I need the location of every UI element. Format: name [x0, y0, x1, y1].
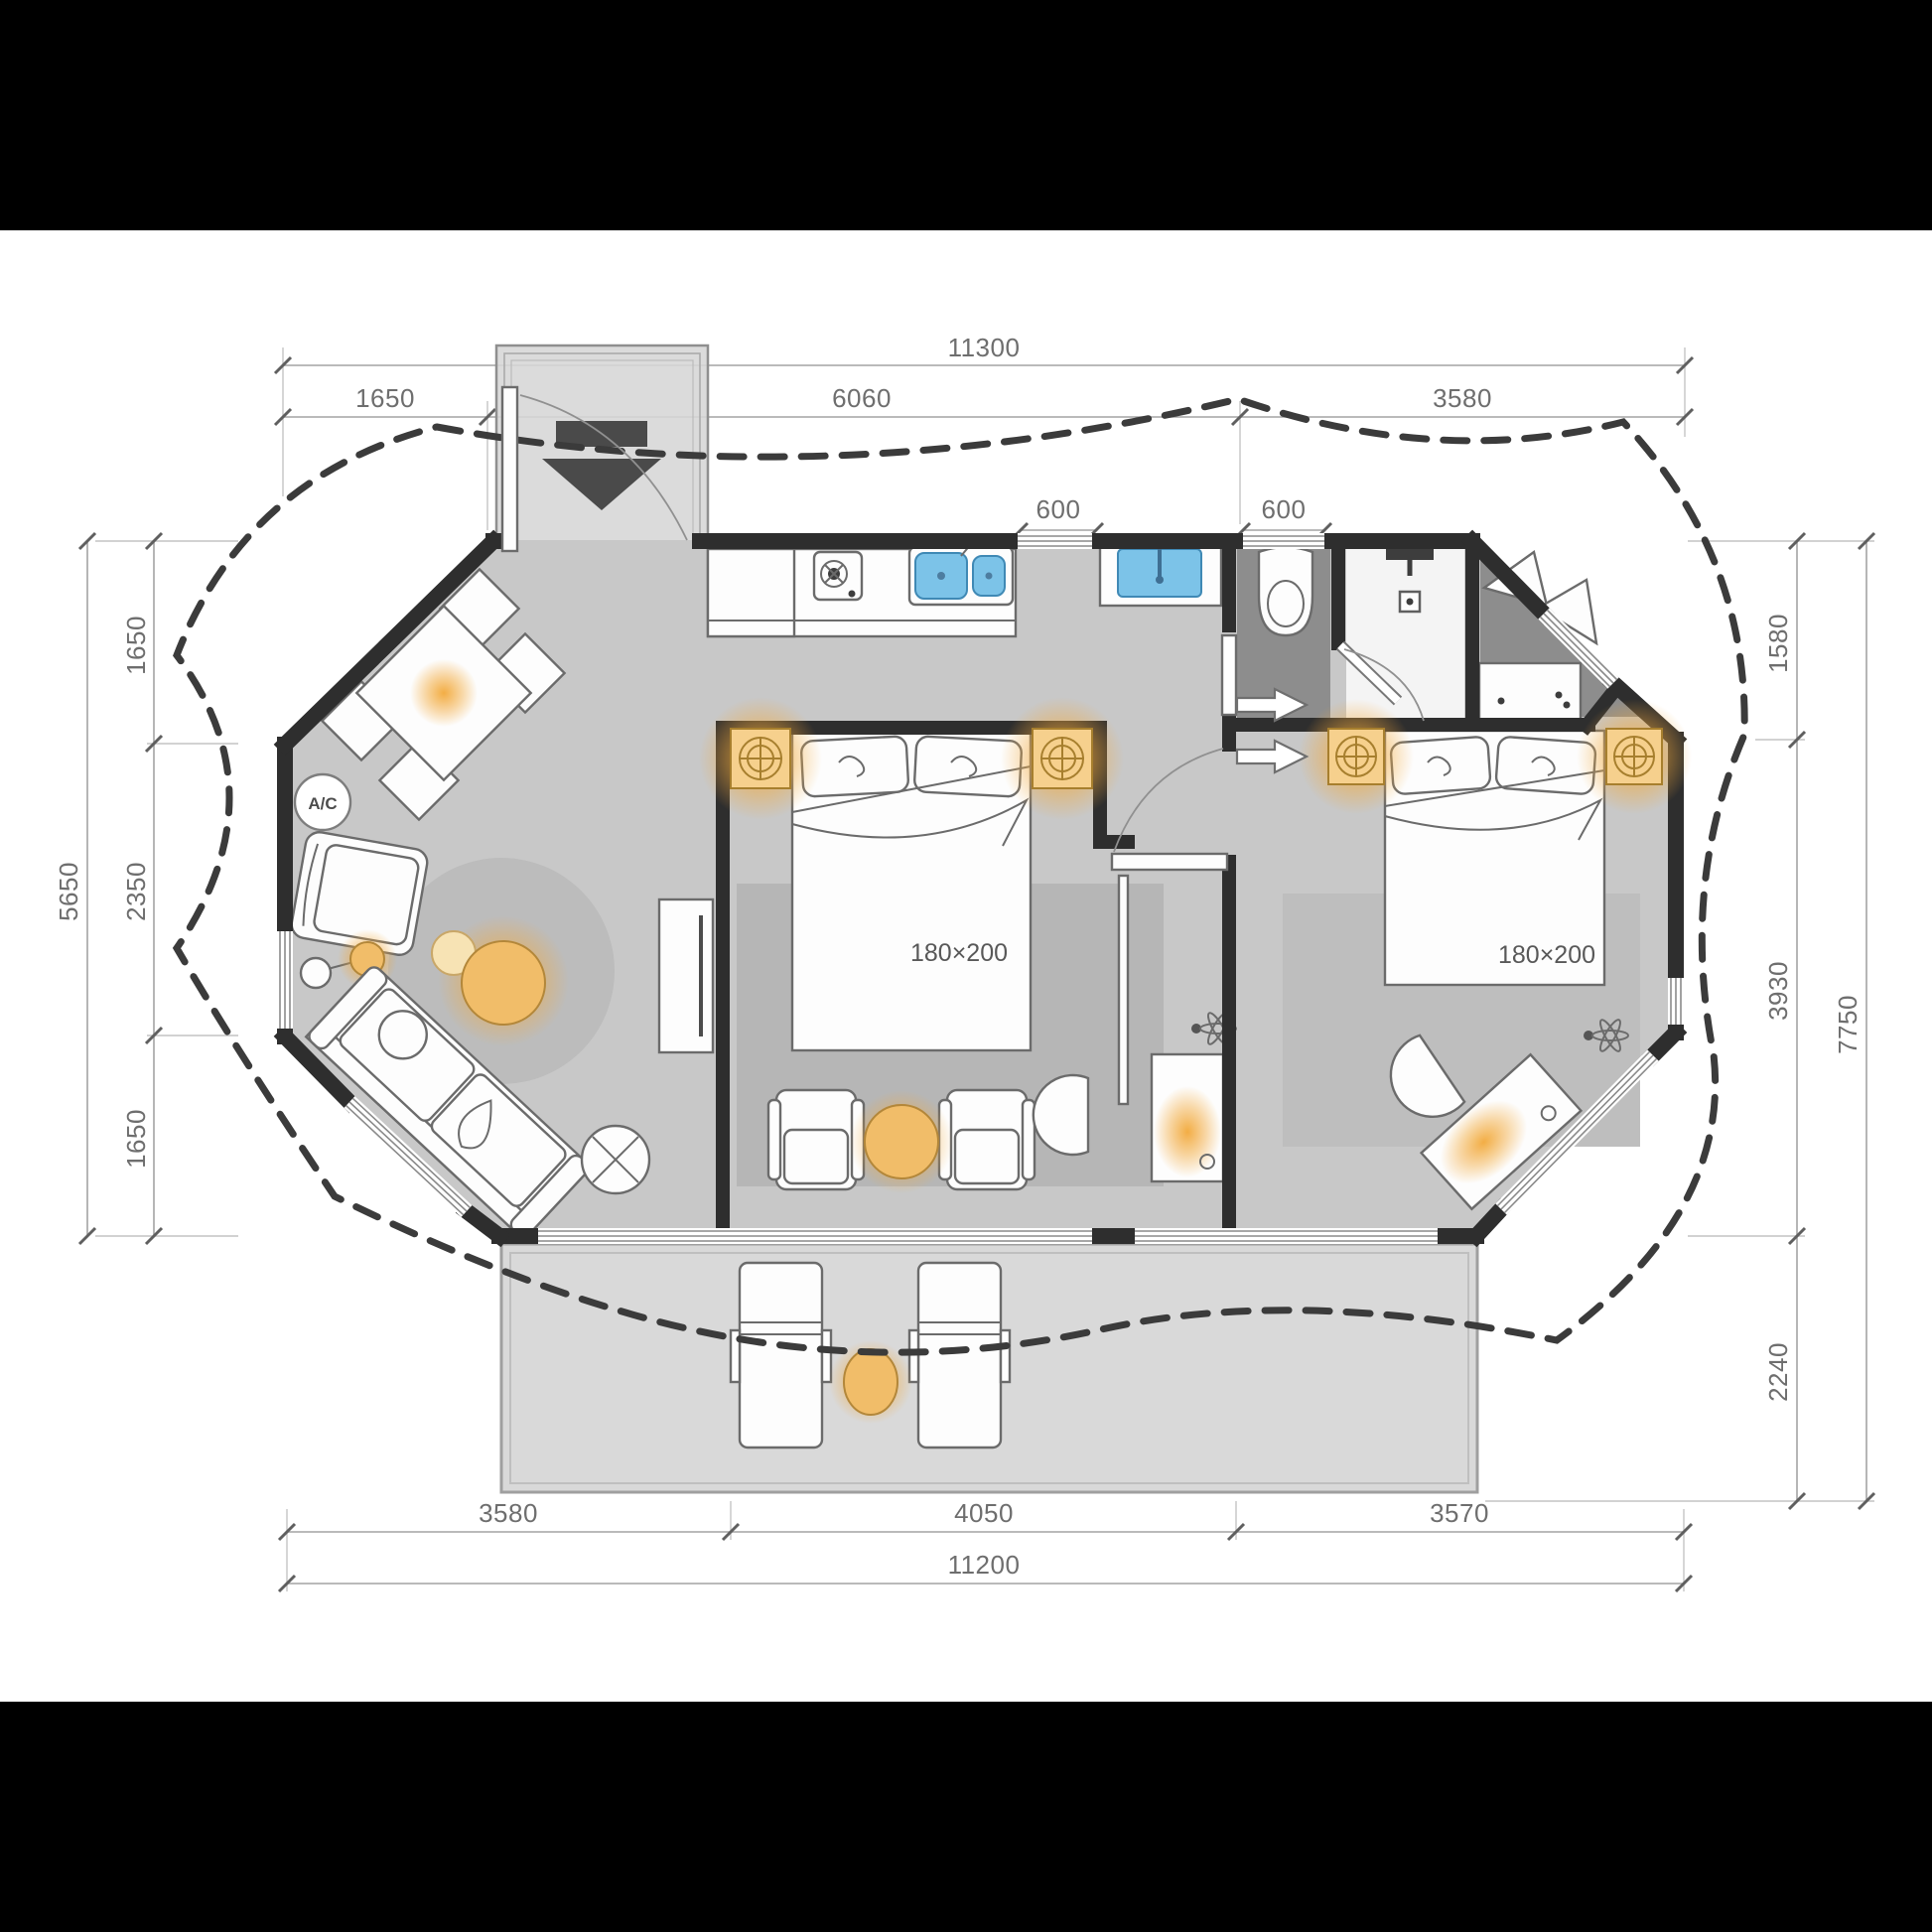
stove [814, 552, 862, 600]
round-side-table [865, 1105, 938, 1178]
fridge [708, 549, 794, 636]
shower-room-floor [1346, 549, 1464, 721]
deck-lounger-1 [731, 1263, 831, 1448]
dim-top-seg1: 1650 [355, 383, 415, 413]
dim-top-seg2: 6060 [832, 383, 892, 413]
bed-1 [792, 728, 1031, 1050]
dim-left-overall: 5650 [54, 862, 83, 921]
dim-top-seg3: 3580 [1433, 383, 1492, 413]
dim-right-seg2: 3930 [1763, 961, 1793, 1021]
dim-bottom-seg1: 3580 [479, 1498, 538, 1528]
dim-bottom-seg3: 3570 [1430, 1498, 1489, 1528]
dim-right-seg1: 1580 [1763, 614, 1793, 673]
dim-fixture-600a: 600 [1036, 494, 1081, 524]
dim-top-overall: 11300 [948, 333, 1021, 362]
dim-left-seg2: 2350 [121, 862, 151, 921]
dim-bottom-seg2: 4050 [954, 1498, 1014, 1528]
entry-door-leaf [502, 387, 517, 551]
dim-fixture-600b: 600 [1262, 494, 1307, 524]
bedroom1-armchair-a [768, 1090, 864, 1189]
dresser [1479, 663, 1581, 721]
double-sink [909, 544, 1013, 605]
floor-plan-page: 11300 1650 6060 3580 600 600 5650 1650 2… [0, 0, 1932, 1932]
ac-unit: A/C [295, 774, 350, 830]
floor-plan-svg: 11300 1650 6060 3580 600 600 5650 1650 2… [0, 0, 1932, 1932]
dim-right-overall: 7750 [1833, 995, 1863, 1054]
bedroom1-armchair-b [939, 1090, 1035, 1189]
dim-bottom-overall: 11200 [948, 1550, 1021, 1580]
deck-table [844, 1349, 897, 1415]
dim-left-seg3: 1650 [121, 1109, 151, 1169]
bed2-size-label: 180×200 [1498, 941, 1595, 969]
bedroom1-sliding-door [1119, 876, 1128, 1104]
dim-left-seg1: 1650 [121, 616, 151, 675]
washbasin-unit [1100, 544, 1221, 606]
deck [501, 1244, 1477, 1492]
toilet [1259, 547, 1312, 635]
bedroom2-door-leaf [1112, 854, 1227, 870]
tv-console [659, 899, 713, 1052]
bedroom-1: 180×200 [768, 728, 1035, 1193]
toilet-door-leaf [1222, 635, 1236, 715]
side-table-x [582, 1126, 649, 1193]
ac-label: A/C [308, 794, 337, 813]
kitchen-counter [708, 544, 1016, 636]
bed1-size-label: 180×200 [910, 939, 1008, 967]
letterbox-top [0, 0, 1932, 230]
letterbox-bottom [0, 1702, 1932, 1932]
dim-right-seg3: 2240 [1763, 1342, 1793, 1402]
